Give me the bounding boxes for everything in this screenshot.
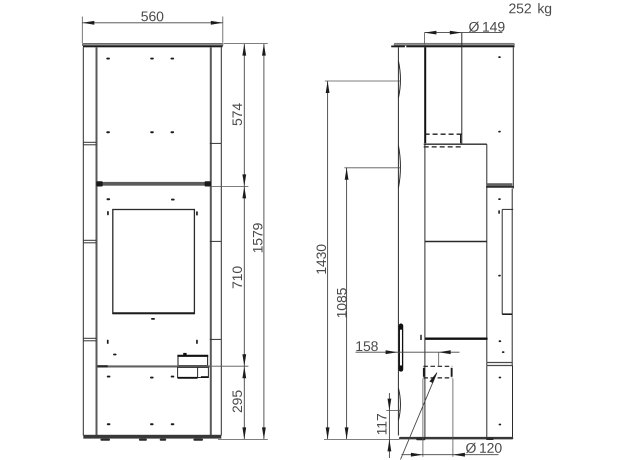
svg-text:295: 295 — [229, 390, 245, 413]
svg-text:Ø 149: Ø 149 — [468, 19, 505, 35]
svg-text:Ø 120: Ø 120 — [465, 440, 502, 456]
svg-text:1579: 1579 — [249, 222, 265, 253]
svg-text:560: 560 — [141, 8, 164, 24]
svg-text:1430: 1430 — [313, 244, 329, 275]
svg-text:574: 574 — [229, 103, 245, 126]
svg-text:158: 158 — [355, 338, 378, 354]
svg-text:710: 710 — [229, 266, 245, 289]
svg-text:252 kg: 252 kg — [508, 0, 551, 16]
svg-text:117: 117 — [374, 413, 390, 435]
svg-text:1085: 1085 — [333, 287, 349, 318]
